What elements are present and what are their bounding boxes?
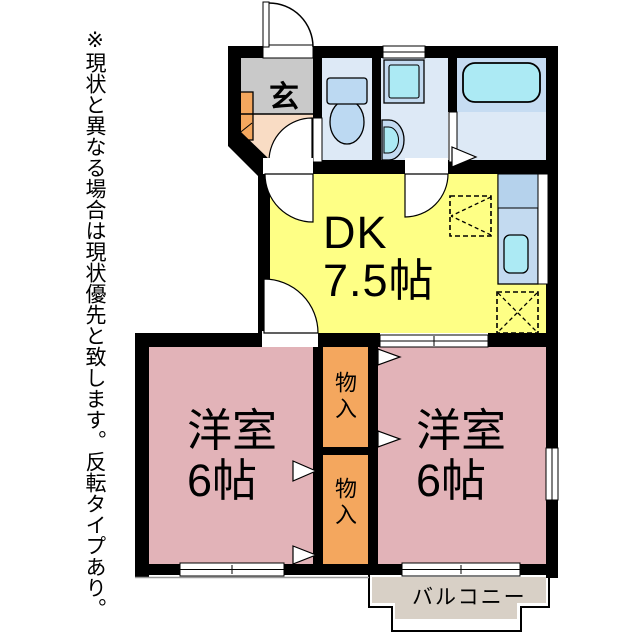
floorplan: ※現状と異なる場合は現状優先と致します。反転タイプあり。 玄 DK7.5帖 洋室… xyxy=(0,0,640,640)
wall-mid-center xyxy=(318,333,380,347)
entrance-door-swing-arc xyxy=(269,3,313,47)
wall-entrance-left xyxy=(228,46,241,142)
wall-hall-stub xyxy=(258,160,263,174)
toilet-door-leaf xyxy=(313,118,322,162)
kitchen-side-window xyxy=(538,174,548,284)
dk-size: 7.5帖 xyxy=(323,257,435,305)
bedroom-right-name: 洋室 xyxy=(416,406,506,456)
disclaimer-note: ※現状と異なる場合は現状優先と致します。反転タイプあり。 xyxy=(84,28,105,619)
wall-left-lower xyxy=(135,333,149,578)
bedroom-left-name: 洋室 xyxy=(187,406,277,456)
wall-mid-right xyxy=(488,333,558,347)
balcony-label: バルコニー xyxy=(412,581,527,611)
hallway-dk-doorway xyxy=(263,158,313,174)
closet-bottom-label: 物入 xyxy=(333,477,355,529)
closet-top-label: 物入 xyxy=(333,371,355,423)
entrance-door-open-leaf xyxy=(263,2,269,47)
wall-closet-left xyxy=(313,347,323,564)
entrance-label: 玄 xyxy=(269,72,299,116)
bathtub-icon xyxy=(463,63,540,102)
toilet-tank-icon xyxy=(327,78,367,104)
wall-mid-left xyxy=(135,333,262,347)
wall-toilet-washroom xyxy=(372,46,381,160)
washroom-dk-doorway xyxy=(405,158,448,174)
wall-under-toilet xyxy=(313,160,405,174)
bedroom-left-size: 6帖 xyxy=(187,456,277,506)
washing-machine-pan-inner xyxy=(389,65,419,98)
bedroom-right-label: 洋室6帖 xyxy=(416,406,506,506)
kitchen-sink-icon xyxy=(504,235,528,273)
wall-closet-divider xyxy=(313,447,378,455)
kitchen-upper-cabinet xyxy=(498,174,538,208)
dk-name: DK xyxy=(323,209,435,257)
wall-toilet-left xyxy=(313,46,322,118)
wall-washroom-bath xyxy=(448,46,457,112)
dk-label: DK7.5帖 xyxy=(323,209,435,305)
wall-closet-right xyxy=(368,347,378,564)
bedroom-left-label: 洋室6帖 xyxy=(187,406,277,506)
bedroom-right-size: 6帖 xyxy=(416,456,506,506)
toilet-bowl-icon xyxy=(330,100,364,144)
entrance-door-leaf xyxy=(263,45,313,58)
